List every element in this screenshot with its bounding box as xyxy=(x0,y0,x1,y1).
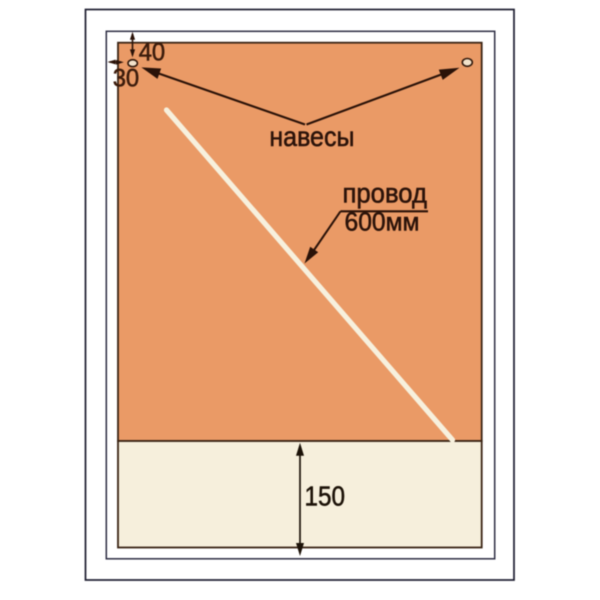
svg-text:600мм: 600мм xyxy=(345,207,420,237)
svg-text:навесы: навесы xyxy=(269,121,354,152)
svg-text:150: 150 xyxy=(305,481,346,512)
svg-text:провод: провод xyxy=(343,178,428,209)
svg-text:40: 40 xyxy=(139,39,166,67)
svg-text:30: 30 xyxy=(113,65,140,93)
